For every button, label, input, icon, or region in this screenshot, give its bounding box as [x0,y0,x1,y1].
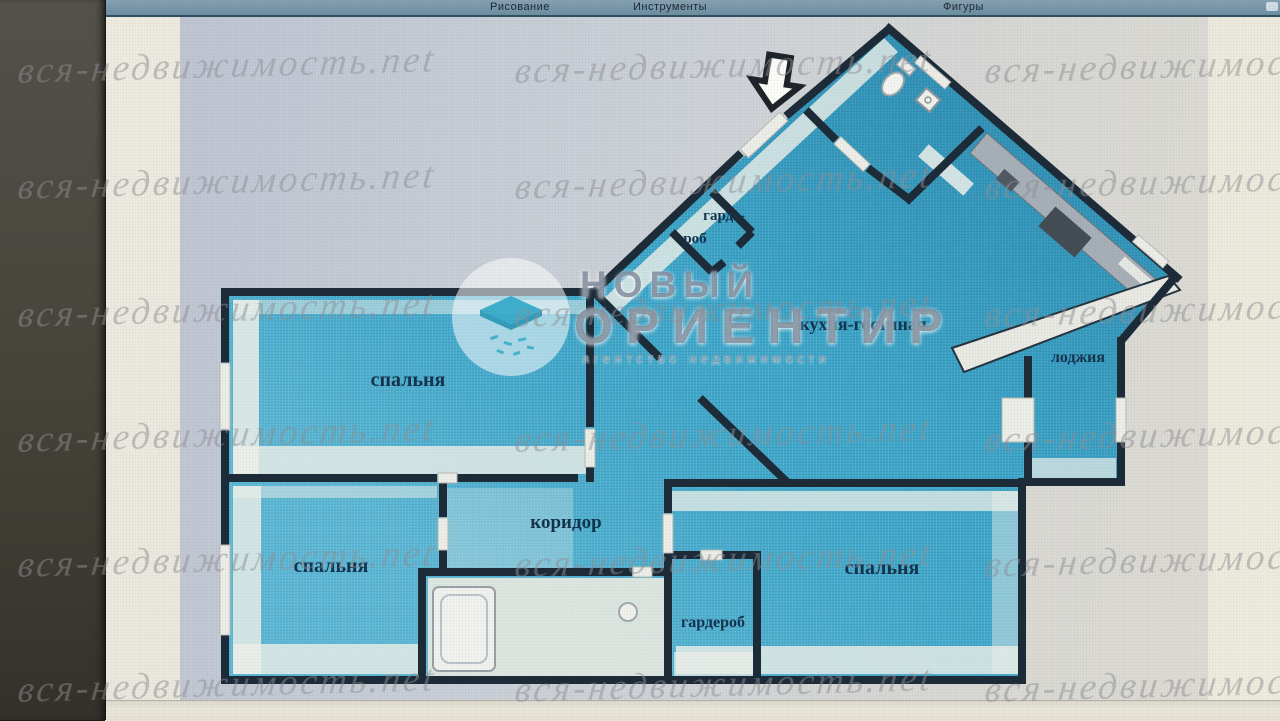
photo-of-screen: спальня спальня спальня кухня-гостиная л… [0,0,1280,720]
room-label-loggia: лоджия [1051,349,1105,366]
room-label-wardrobe: гардероб [681,614,745,631]
room-label-bedroom-bottom-left: спальня [294,555,369,577]
toolbar-item-drawing[interactable]: Рисование [490,1,550,13]
room-label-kitchen-living: кухня-гостиная [799,314,927,334]
room-label-closet-line2: роб [683,231,706,247]
room-label-closet-line1: гарде- [703,208,745,224]
room-label-bedroom-bottom-right: спальня [845,557,920,579]
bathroom-lower [428,578,666,678]
photo-dark-border [0,0,106,720]
room-label-corridor: коридор [530,512,601,533]
washbasin-icon [619,603,637,621]
toolbar-item-shapes[interactable]: Фигуры [943,1,984,13]
floor-fill [225,30,1178,680]
floor-plan: спальня спальня спальня кухня-гостиная л… [0,0,1280,720]
app-toolbar: Рисование Инструменты Фигуры [105,0,1280,17]
screen-bottom-edge [105,700,1280,721]
window-control-partial[interactable] [1266,2,1278,11]
toolbar-item-tools[interactable]: Инструменты [633,1,707,13]
room-label-bedroom-top-left: спальня [371,369,446,391]
